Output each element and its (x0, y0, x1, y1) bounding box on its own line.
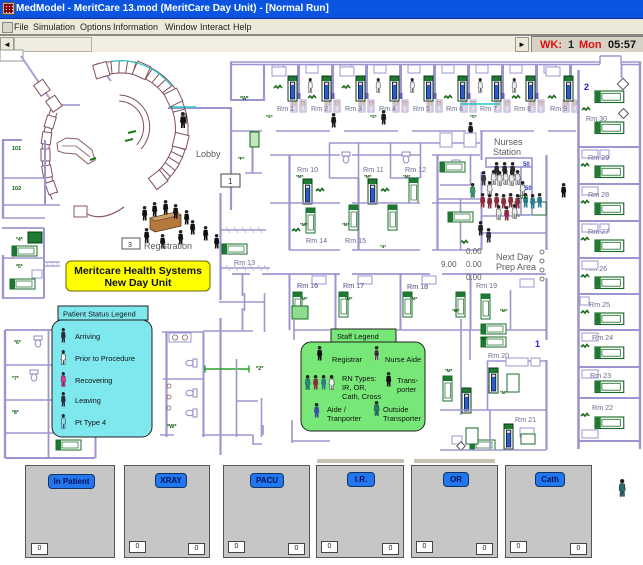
svg-text:50: 50 (523, 162, 530, 168)
svg-text:Patient Status Legend: Patient Status Legend (63, 310, 136, 319)
svg-text:Rm 12: Rm 12 (405, 165, 426, 174)
svg-text:Prior to Procedure: Prior to Procedure (75, 354, 135, 363)
svg-text:Rm 1: Rm 1 (277, 104, 294, 113)
svg-text:*M*: *M* (403, 174, 411, 179)
svg-text:*S*: *S* (266, 114, 273, 119)
svg-text:New Day Unit: New Day Unit (104, 277, 172, 289)
svg-text:2: 2 (584, 82, 589, 92)
svg-text:Recovering: Recovering (75, 376, 112, 385)
svg-text:*F*: *F* (238, 156, 245, 161)
svg-text:0.00: 0.00 (466, 273, 482, 282)
svg-text:Cath, Cross: Cath, Cross (342, 392, 381, 401)
svg-text:*M*: *M* (452, 308, 460, 313)
svg-text:1: 1 (228, 177, 233, 186)
svg-text:0.00: 0.00 (466, 260, 482, 269)
svg-text:Rm 28: Rm 28 (588, 190, 609, 199)
svg-text:*M*: *M* (345, 296, 353, 301)
svg-text:*4*: *4* (380, 244, 386, 249)
svg-text:50: 50 (525, 186, 532, 192)
svg-text:Rm 5: Rm 5 (413, 104, 430, 113)
svg-text:Rm 11: Rm 11 (363, 165, 384, 174)
svg-text:Rm 17: Rm 17 (343, 281, 364, 290)
svg-text:Rm 6: Rm 6 (446, 104, 463, 113)
svg-text:Rm 13: Rm 13 (234, 258, 255, 267)
svg-text:*8*: *8* (12, 410, 19, 416)
svg-text:Meritcare Health Systems: Meritcare Health Systems (74, 265, 202, 277)
svg-text:*W*: *W* (167, 424, 177, 430)
svg-text:Rm 29: Rm 29 (588, 153, 609, 162)
svg-text:Tranporter: Tranporter (327, 414, 362, 423)
svg-text:9.00: 9.00 (441, 260, 457, 269)
svg-text:Outside: Outside (383, 405, 408, 414)
svg-text:*W*: *W* (240, 96, 249, 102)
svg-text:Prep Area: Prep Area (496, 262, 536, 272)
svg-text:Arriving: Arriving (75, 332, 100, 341)
svg-text:Rm 22: Rm 22 (592, 403, 613, 412)
svg-text:Rm 9: Rm 9 (550, 104, 567, 113)
svg-text:RN Types:: RN Types: (342, 374, 376, 383)
svg-text:3: 3 (128, 242, 132, 249)
svg-text:*S*: *S* (470, 114, 477, 119)
svg-text:*2*: *2* (256, 366, 264, 372)
svg-text:Rm 21: Rm 21 (515, 415, 536, 424)
svg-text:*S*: *S* (370, 114, 377, 119)
svg-text:IR, OR,: IR, OR, (342, 383, 367, 392)
svg-text:Staff Legend: Staff Legend (337, 332, 379, 341)
svg-text:*5*: *5* (16, 264, 23, 270)
svg-text:Registration: Registration (144, 241, 192, 251)
svg-text:*M*: *M* (445, 368, 453, 373)
svg-text:1: 1 (535, 339, 540, 349)
svg-text:Rm 8: Rm 8 (514, 104, 531, 113)
svg-text:*M*: *M* (342, 222, 350, 227)
svg-text:*M*: *M* (500, 308, 508, 313)
svg-text:*7*: *7* (12, 376, 19, 382)
svg-text:Rm 10: Rm 10 (297, 165, 318, 174)
svg-text:Rm 2: Rm 2 (311, 104, 328, 113)
svg-text:Next Day: Next Day (496, 252, 534, 262)
svg-text:*M*: *M* (300, 222, 308, 227)
svg-text:*4*: *4* (16, 237, 23, 243)
svg-text:Rm 18: Rm 18 (407, 282, 428, 291)
svg-text:*M*: *M* (410, 296, 418, 301)
svg-text:101: 101 (12, 146, 21, 152)
svg-text:Rm 24: Rm 24 (592, 333, 613, 342)
svg-text:3.00: 3.00 (518, 195, 528, 201)
svg-text:Aide /: Aide / (327, 405, 347, 414)
svg-text:Nurse Aide: Nurse Aide (385, 355, 421, 364)
svg-text:Rm 27: Rm 27 (588, 227, 609, 236)
svg-text:Rm 14: Rm 14 (306, 236, 327, 245)
svg-text:*M*: *M* (480, 336, 488, 341)
svg-text:Pt Type 4: Pt Type 4 (75, 418, 106, 427)
svg-text:Lobby: Lobby (196, 149, 221, 159)
svg-text:*M*: *M* (500, 390, 508, 395)
svg-text:Rm 15: Rm 15 (345, 236, 366, 245)
svg-text:Rm 23: Rm 23 (590, 371, 611, 380)
svg-text:*M*: *M* (300, 296, 308, 301)
svg-text:*M*: *M* (364, 174, 372, 179)
svg-text:0.00: 0.00 (466, 247, 482, 256)
svg-text:Rm 19: Rm 19 (476, 281, 497, 290)
svg-text:Rm 3: Rm 3 (345, 104, 362, 113)
svg-text:*M*: *M* (296, 174, 304, 179)
svg-text:*6*: *6* (14, 340, 21, 346)
svg-text:Rm 16: Rm 16 (297, 281, 318, 290)
svg-text:Transporter: Transporter (383, 414, 421, 423)
svg-text:Registrar: Registrar (332, 355, 363, 364)
svg-text:Rm 7: Rm 7 (480, 104, 497, 113)
svg-text:Leaving: Leaving (75, 396, 101, 405)
svg-text:Rm 25: Rm 25 (589, 300, 610, 309)
svg-text:Trans-: Trans- (397, 376, 419, 385)
svg-text:porter: porter (397, 385, 417, 394)
svg-text:Nurses: Nurses (494, 137, 523, 147)
svg-text:Station: Station (493, 147, 521, 157)
svg-text:102: 102 (12, 186, 21, 192)
svg-text:Rm 4: Rm 4 (379, 104, 396, 113)
